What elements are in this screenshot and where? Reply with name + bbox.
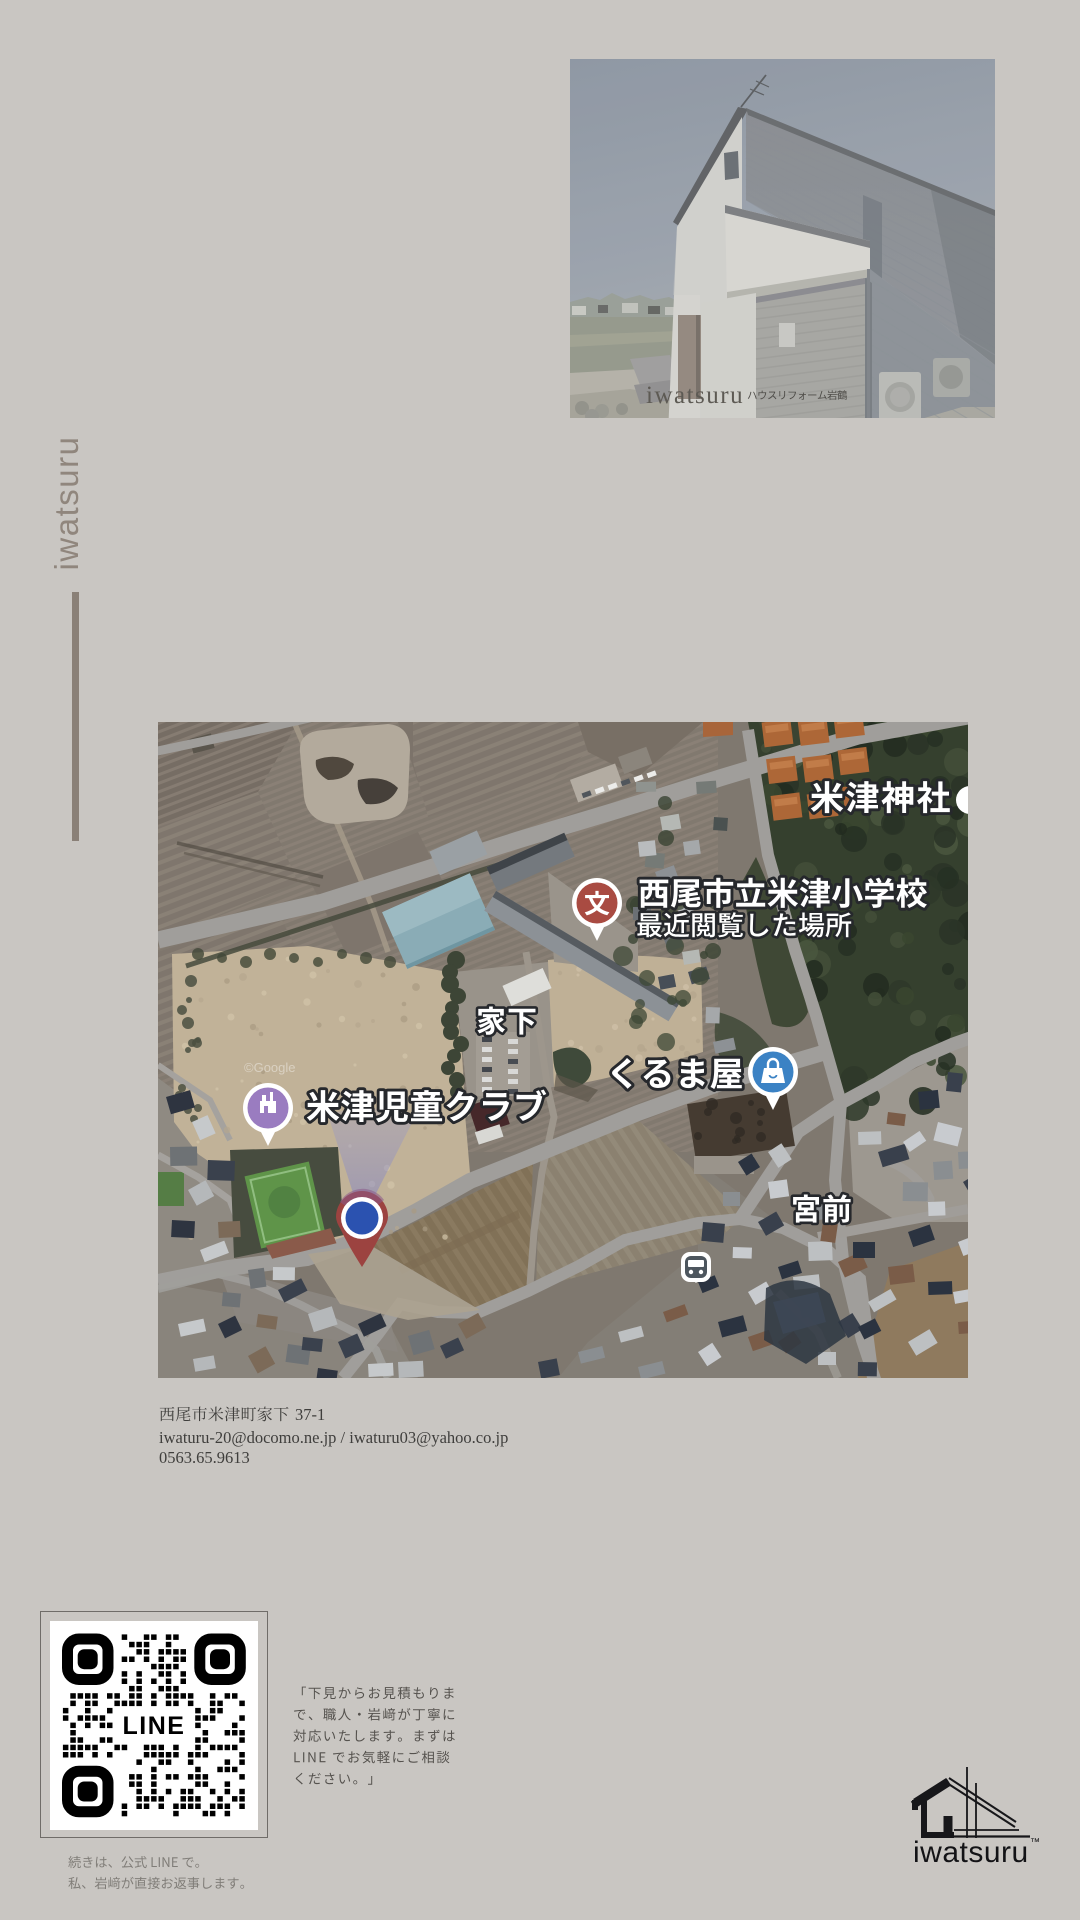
- svg-text:0563.65.9613: 0563.65.9613: [159, 1448, 250, 1467]
- svg-text:37-1: 37-1: [295, 1405, 325, 1424]
- svg-text:©Google: ©Google: [244, 1060, 296, 1075]
- svg-text:LINE: LINE: [123, 1712, 186, 1740]
- svg-text:™: ™: [1030, 1837, 1040, 1848]
- svg-text:iwatsuru: iwatsuru: [913, 1836, 1029, 1869]
- svg-text:iwaturu-20@docomo.ne.jp / iwat: iwaturu-20@docomo.ne.jp / iwaturu03@yaho…: [159, 1428, 508, 1447]
